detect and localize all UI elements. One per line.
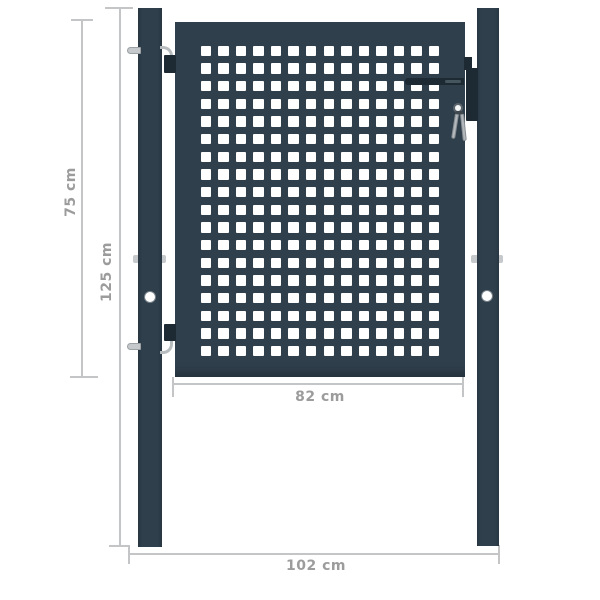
perforation-hole bbox=[394, 311, 405, 322]
perforation-hole bbox=[271, 63, 282, 74]
dim-overall-width-line bbox=[128, 553, 500, 555]
perforation-hole bbox=[253, 293, 264, 304]
perforation-hole bbox=[306, 134, 317, 145]
perforation-hole bbox=[324, 187, 335, 198]
perforation-hole bbox=[429, 63, 440, 74]
dim-overall-width-label: 102 cm bbox=[246, 556, 386, 576]
perforation-hole bbox=[359, 311, 370, 322]
perforation-hole bbox=[359, 81, 370, 92]
perforation-hole bbox=[359, 169, 370, 180]
perforation-hole bbox=[271, 152, 282, 163]
perforation-hole bbox=[201, 222, 212, 233]
perforation-hole bbox=[236, 46, 247, 57]
perforation-hole bbox=[236, 328, 247, 339]
perforation-hole bbox=[218, 152, 229, 163]
perforation-hole bbox=[271, 346, 282, 357]
perforation-hole bbox=[288, 311, 299, 322]
perforation-hole bbox=[253, 99, 264, 110]
perforation-hole bbox=[394, 134, 405, 145]
perforation-hole bbox=[236, 63, 247, 74]
perforation-hole bbox=[218, 169, 229, 180]
perforation-hole bbox=[201, 187, 212, 198]
perforation-hole bbox=[411, 99, 422, 110]
perforation-hole bbox=[341, 328, 352, 339]
perforation-hole bbox=[359, 187, 370, 198]
perforation-hole bbox=[359, 293, 370, 304]
perforation-hole bbox=[218, 134, 229, 145]
perforation-hole bbox=[271, 205, 282, 216]
perforation-hole bbox=[394, 222, 405, 233]
perforation-hole bbox=[236, 346, 247, 357]
perforation-hole bbox=[376, 240, 387, 251]
perforation-hole bbox=[376, 258, 387, 269]
dim-post-height-line bbox=[119, 7, 121, 547]
perforation-hole bbox=[253, 346, 264, 357]
perforation-hole bbox=[201, 46, 212, 57]
perforation-hole bbox=[201, 293, 212, 304]
perforation-hole bbox=[253, 46, 264, 57]
dim-post-height-label: 125 cm bbox=[97, 212, 117, 332]
perforation-hole bbox=[271, 240, 282, 251]
perforation-hole bbox=[218, 258, 229, 269]
perforation-hole bbox=[288, 134, 299, 145]
perforation-hole bbox=[411, 134, 422, 145]
perforation-hole bbox=[411, 240, 422, 251]
perforation-hole bbox=[271, 116, 282, 127]
perforation-hole bbox=[429, 311, 440, 322]
perforation-hole bbox=[429, 169, 440, 180]
perforation-hole bbox=[429, 152, 440, 163]
perforation-hole bbox=[429, 258, 440, 269]
perforation-hole bbox=[306, 258, 317, 269]
perforation-hole bbox=[341, 116, 352, 127]
perforation-hole bbox=[253, 222, 264, 233]
perforation-hole bbox=[359, 346, 370, 357]
hinge-bottom-pin-icon bbox=[127, 343, 141, 350]
perforation-hole bbox=[359, 222, 370, 233]
perforation-hole bbox=[324, 293, 335, 304]
screw-hole-right-post bbox=[482, 291, 492, 301]
perforation-hole bbox=[271, 46, 282, 57]
dim-overall-width-tick-right bbox=[498, 545, 500, 564]
perforation-hole bbox=[288, 275, 299, 286]
perforation-hole bbox=[306, 346, 317, 357]
perforation-hole bbox=[253, 311, 264, 322]
perforation-hole bbox=[253, 169, 264, 180]
perforation-hole bbox=[376, 63, 387, 74]
dim-gate-width-label: 82 cm bbox=[260, 387, 380, 407]
perforation-hole bbox=[201, 134, 212, 145]
perforation-hole bbox=[288, 205, 299, 216]
perforation-hole bbox=[306, 187, 317, 198]
perforation-hole bbox=[218, 346, 229, 357]
perforation-hole bbox=[218, 240, 229, 251]
dim-post-height-tick-top bbox=[105, 7, 133, 9]
handle-bar bbox=[405, 78, 464, 85]
perforation-hole bbox=[341, 134, 352, 145]
perforation-hole bbox=[376, 275, 387, 286]
perforation-hole bbox=[201, 169, 212, 180]
perforation-hole bbox=[394, 81, 405, 92]
perforation-hole bbox=[236, 134, 247, 145]
dim-gate-height-line bbox=[81, 20, 83, 377]
perforation-hole bbox=[288, 81, 299, 92]
perforation-hole bbox=[376, 293, 387, 304]
perforation-hole bbox=[376, 205, 387, 216]
perforation-hole bbox=[341, 275, 352, 286]
perforation-hole bbox=[218, 311, 229, 322]
perforation-hole bbox=[271, 81, 282, 92]
perforation-hole bbox=[429, 328, 440, 339]
gate-panel bbox=[175, 22, 465, 377]
perforation-hole bbox=[271, 134, 282, 145]
perforation-hole bbox=[376, 222, 387, 233]
perforation-hole bbox=[306, 205, 317, 216]
perforation-hole bbox=[341, 346, 352, 357]
perforation-hole bbox=[376, 311, 387, 322]
perforation-hole bbox=[236, 99, 247, 110]
hinge-bottom-arm-icon bbox=[160, 341, 173, 354]
perforation-hole bbox=[359, 205, 370, 216]
perforation-hole bbox=[236, 205, 247, 216]
perforation-hole bbox=[411, 275, 422, 286]
perforation-hole bbox=[288, 46, 299, 57]
perforation-hole bbox=[306, 99, 317, 110]
perforation-hole bbox=[394, 328, 405, 339]
perforation-hole bbox=[201, 275, 212, 286]
perforation-hole bbox=[429, 275, 440, 286]
perforation-hole bbox=[376, 46, 387, 57]
perforation-hole bbox=[341, 222, 352, 233]
perforation-hole bbox=[306, 311, 317, 322]
perforation-hole bbox=[394, 275, 405, 286]
perforation-hole bbox=[324, 116, 335, 127]
perforation-hole bbox=[201, 116, 212, 127]
perforation-hole bbox=[288, 346, 299, 357]
perforation-hole bbox=[236, 222, 247, 233]
hinge-top-pin-icon bbox=[127, 47, 141, 54]
perforation-hole bbox=[218, 222, 229, 233]
perforation-hole bbox=[324, 275, 335, 286]
perforation-hole bbox=[359, 63, 370, 74]
perforation-hole bbox=[324, 152, 335, 163]
perforation-hole bbox=[201, 311, 212, 322]
perforation-hole bbox=[341, 258, 352, 269]
perforation-hole bbox=[218, 275, 229, 286]
perforation-hole bbox=[376, 134, 387, 145]
perforation-hole bbox=[306, 116, 317, 127]
perforation-hole bbox=[288, 328, 299, 339]
perforation-hole bbox=[324, 63, 335, 74]
perforation-hole bbox=[306, 81, 317, 92]
perforation-hole bbox=[411, 205, 422, 216]
perforation-hole bbox=[271, 222, 282, 233]
perforation-hole bbox=[411, 311, 422, 322]
perforation-hole bbox=[236, 116, 247, 127]
perforation-hole bbox=[394, 240, 405, 251]
perforation-hole bbox=[394, 116, 405, 127]
perforation-hole bbox=[271, 275, 282, 286]
perforation-hole bbox=[411, 222, 422, 233]
perforation-hole bbox=[359, 99, 370, 110]
handle-shine bbox=[445, 80, 461, 83]
perforation-hole bbox=[411, 258, 422, 269]
perforation-hole bbox=[236, 311, 247, 322]
perforation-hole bbox=[429, 187, 440, 198]
perforation-hole bbox=[236, 293, 247, 304]
perforation-hole bbox=[376, 152, 387, 163]
perforation-hole bbox=[271, 328, 282, 339]
perforation-hole bbox=[394, 258, 405, 269]
perforation-hole bbox=[324, 240, 335, 251]
perforation-hole bbox=[411, 152, 422, 163]
perforation-hole bbox=[411, 169, 422, 180]
perforation-hole bbox=[288, 258, 299, 269]
perforation-hole bbox=[306, 169, 317, 180]
perforation-hole bbox=[253, 81, 264, 92]
perforation-hole bbox=[411, 187, 422, 198]
perforation-hole bbox=[324, 99, 335, 110]
perforation-hole bbox=[288, 187, 299, 198]
perforation-hole bbox=[236, 240, 247, 251]
dim-overall-width-tick-left bbox=[128, 545, 130, 564]
dim-gate-width-line bbox=[173, 383, 464, 385]
perforation-hole bbox=[288, 222, 299, 233]
perforation-hole bbox=[201, 152, 212, 163]
perforation-hole bbox=[201, 63, 212, 74]
perforation-hole bbox=[236, 187, 247, 198]
perforation-hole bbox=[271, 311, 282, 322]
perforation-hole bbox=[394, 346, 405, 357]
perforation-hole bbox=[271, 187, 282, 198]
perforation-hole bbox=[429, 293, 440, 304]
perforation-hole bbox=[341, 46, 352, 57]
perforation-hole bbox=[341, 187, 352, 198]
perforation-hole bbox=[236, 275, 247, 286]
perforation-hole bbox=[271, 258, 282, 269]
perforation-hole bbox=[376, 346, 387, 357]
perforation-hole bbox=[288, 293, 299, 304]
perforation-hole bbox=[271, 99, 282, 110]
perforation-hole bbox=[201, 258, 212, 269]
perforation-hole bbox=[341, 63, 352, 74]
perforation-hole bbox=[218, 46, 229, 57]
perforation-hole bbox=[236, 81, 247, 92]
perforation-hole bbox=[201, 81, 212, 92]
perforation-hole bbox=[253, 63, 264, 74]
perforation-hole bbox=[306, 152, 317, 163]
screw-hole-left-post bbox=[145, 292, 155, 302]
perforation-hole bbox=[288, 99, 299, 110]
perforation-hole bbox=[306, 222, 317, 233]
perforation-hole bbox=[359, 116, 370, 127]
perforation-hole bbox=[201, 328, 212, 339]
perforation-hole bbox=[201, 346, 212, 357]
perforation-hole bbox=[429, 46, 440, 57]
perforation-hole bbox=[341, 169, 352, 180]
perforation-hole bbox=[253, 187, 264, 198]
perforation-hole bbox=[324, 81, 335, 92]
product-diagram: 75 cm 125 cm 82 cm 102 cm bbox=[0, 0, 600, 600]
perforation-hole bbox=[324, 46, 335, 57]
perforation-hole bbox=[218, 99, 229, 110]
perforation-hole bbox=[324, 346, 335, 357]
perforation-hole bbox=[359, 152, 370, 163]
perforation-hole bbox=[253, 328, 264, 339]
perforation-hole bbox=[429, 346, 440, 357]
perforation-hole bbox=[341, 205, 352, 216]
left-post bbox=[138, 8, 162, 547]
perforation-hole bbox=[429, 222, 440, 233]
perforation-hole bbox=[359, 240, 370, 251]
perforation-hole bbox=[411, 116, 422, 127]
perforation-hole bbox=[359, 275, 370, 286]
perforation-hole bbox=[394, 63, 405, 74]
perforation-hole bbox=[218, 81, 229, 92]
perforation-hole bbox=[429, 116, 440, 127]
perforation-hole bbox=[359, 258, 370, 269]
perforation-hole bbox=[218, 187, 229, 198]
perforation-hole bbox=[218, 205, 229, 216]
perforation-hole bbox=[288, 63, 299, 74]
perforation-hole bbox=[201, 205, 212, 216]
perforation-hole bbox=[306, 328, 317, 339]
perforation-hole bbox=[324, 134, 335, 145]
perforation-hole bbox=[411, 328, 422, 339]
perforation-hole bbox=[341, 311, 352, 322]
perforation-hole bbox=[376, 328, 387, 339]
perforation-grid bbox=[197, 42, 443, 360]
perforation-hole bbox=[253, 258, 264, 269]
perforation-hole bbox=[288, 152, 299, 163]
perforation-hole bbox=[394, 46, 405, 57]
perforation-hole bbox=[253, 134, 264, 145]
perforation-hole bbox=[376, 169, 387, 180]
hinge-top-plate-icon bbox=[164, 55, 176, 73]
perforation-hole bbox=[201, 99, 212, 110]
perforation-hole bbox=[341, 81, 352, 92]
perforation-hole bbox=[324, 169, 335, 180]
perforation-hole bbox=[288, 240, 299, 251]
perforation-hole bbox=[271, 293, 282, 304]
perforation-hole bbox=[236, 169, 247, 180]
perforation-hole bbox=[288, 169, 299, 180]
perforation-hole bbox=[253, 275, 264, 286]
perforation-hole bbox=[394, 205, 405, 216]
perforation-hole bbox=[341, 99, 352, 110]
perforation-hole bbox=[429, 99, 440, 110]
dim-gate-height-tick-bottom bbox=[70, 376, 98, 378]
perforation-hole bbox=[341, 152, 352, 163]
perforation-hole bbox=[236, 258, 247, 269]
dim-gate-width-tick-left bbox=[172, 377, 174, 397]
dim-post-height-elbow bbox=[109, 545, 130, 547]
perforation-hole bbox=[236, 152, 247, 163]
perforation-hole bbox=[429, 134, 440, 145]
perforation-hole bbox=[324, 222, 335, 233]
perforation-hole bbox=[394, 293, 405, 304]
perforation-hole bbox=[271, 169, 282, 180]
perforation-hole bbox=[218, 116, 229, 127]
perforation-hole bbox=[324, 205, 335, 216]
perforation-hole bbox=[306, 46, 317, 57]
perforation-hole bbox=[324, 328, 335, 339]
perforation-hole bbox=[218, 328, 229, 339]
perforation-hole bbox=[201, 240, 212, 251]
perforation-hole bbox=[376, 116, 387, 127]
perforation-hole bbox=[394, 152, 405, 163]
perforation-hole bbox=[394, 169, 405, 180]
perforation-hole bbox=[429, 205, 440, 216]
perforation-hole bbox=[218, 293, 229, 304]
perforation-hole bbox=[341, 240, 352, 251]
dim-gate-height-label: 75 cm bbox=[61, 132, 81, 252]
perforation-hole bbox=[306, 63, 317, 74]
perforation-hole bbox=[411, 46, 422, 57]
perforation-hole bbox=[429, 240, 440, 251]
perforation-hole bbox=[253, 205, 264, 216]
perforation-hole bbox=[306, 275, 317, 286]
perforation-hole bbox=[411, 293, 422, 304]
perforation-hole bbox=[324, 311, 335, 322]
right-post bbox=[477, 8, 499, 546]
perforation-hole bbox=[288, 116, 299, 127]
perforation-hole bbox=[253, 152, 264, 163]
perforation-hole bbox=[359, 46, 370, 57]
perforation-hole bbox=[359, 328, 370, 339]
perforation-hole bbox=[306, 240, 317, 251]
perforation-hole bbox=[376, 81, 387, 92]
perforation-hole bbox=[218, 63, 229, 74]
perforation-hole bbox=[324, 258, 335, 269]
perforation-hole bbox=[306, 293, 317, 304]
perforation-hole bbox=[376, 187, 387, 198]
perforation-hole bbox=[359, 134, 370, 145]
dim-gate-height-tick-top bbox=[71, 19, 93, 21]
perforation-hole bbox=[341, 293, 352, 304]
lock-body-icon bbox=[466, 68, 478, 121]
perforation-hole bbox=[394, 187, 405, 198]
perforation-hole bbox=[411, 346, 422, 357]
perforation-hole bbox=[376, 99, 387, 110]
perforation-hole bbox=[253, 240, 264, 251]
perforation-hole bbox=[253, 116, 264, 127]
hinge-bottom-plate-icon bbox=[164, 324, 176, 341]
dim-gate-width-tick-right bbox=[462, 377, 464, 397]
perforation-hole bbox=[411, 63, 422, 74]
perforation-hole bbox=[394, 99, 405, 110]
